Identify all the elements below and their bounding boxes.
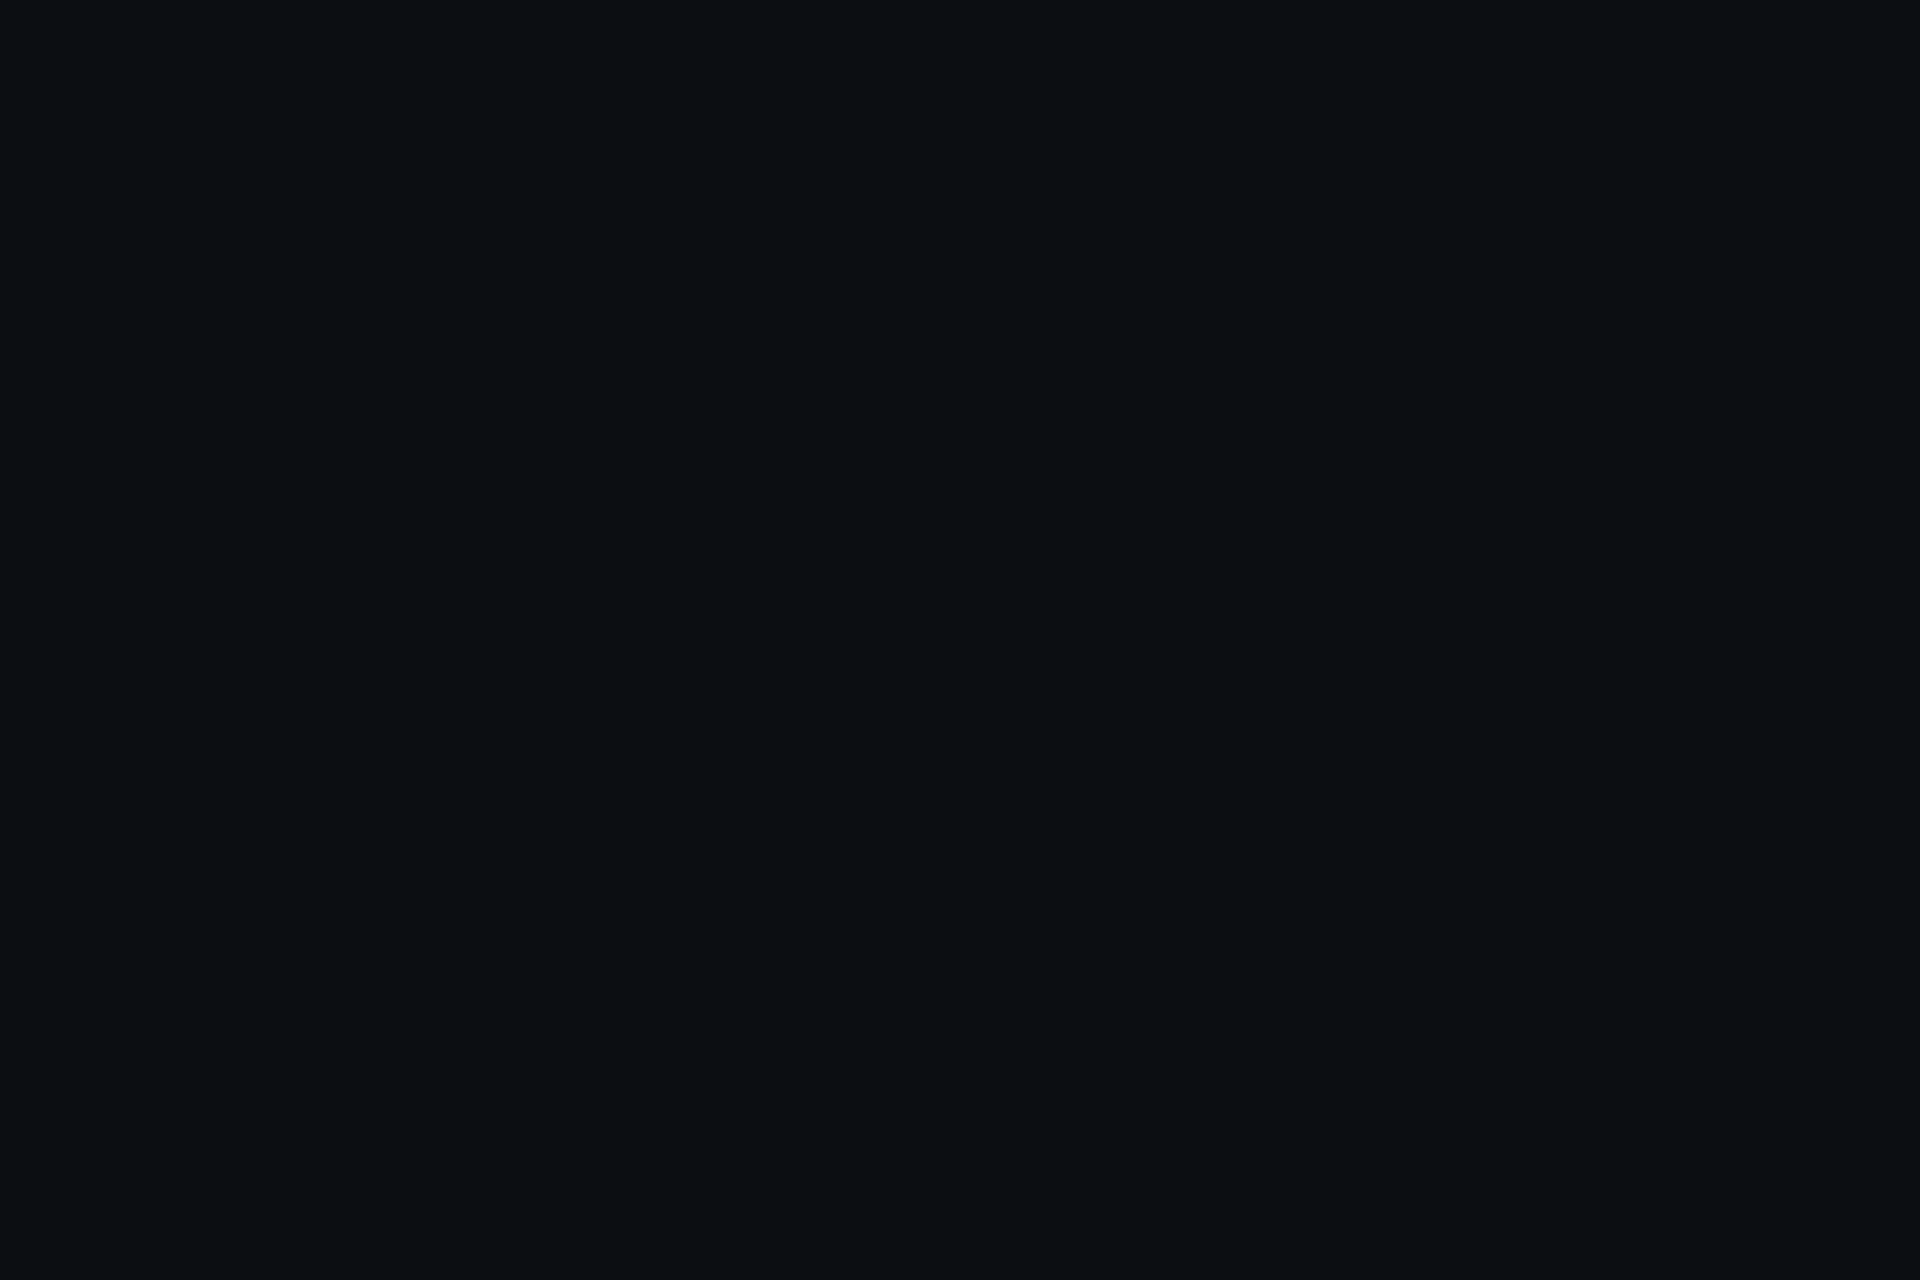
aerial-render (0, 0, 1920, 1280)
aerial-render-viewport (0, 0, 1920, 1280)
